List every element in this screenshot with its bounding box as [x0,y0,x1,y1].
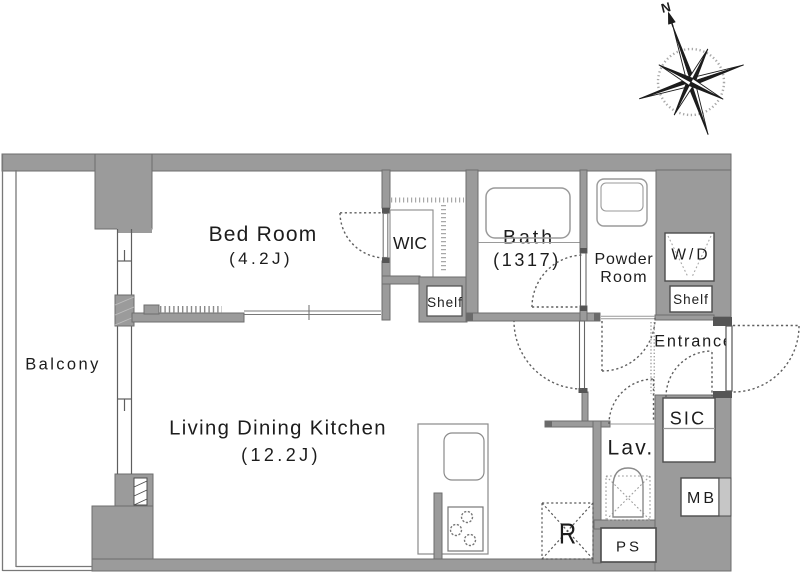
svg-text:Living Dining Kitchen: Living Dining Kitchen [169,418,387,440]
svg-text:N: N [660,0,673,16]
svg-text:Shelf: Shelf [427,295,463,310]
svg-text:SIC: SIC [670,409,707,429]
svg-text:R: R [559,518,576,550]
svg-text:W/D: W/D [671,247,710,264]
svg-text:PS: PS [616,539,642,556]
svg-text:MB: MB [687,490,717,507]
svg-text:Entrance: Entrance [654,333,734,351]
svg-text:(4.2J): (4.2J) [229,249,293,268]
svg-text:(12.2J): (12.2J) [241,445,321,465]
svg-text:Room: Room [600,269,647,286]
svg-text:(1317): (1317) [493,250,561,270]
svg-text:Shelf: Shelf [673,292,709,307]
svg-text:Bed Room: Bed Room [209,223,318,246]
svg-text:Lav.: Lav. [608,437,655,460]
svg-text:Balcony: Balcony [25,356,101,374]
svg-text:WIC: WIC [393,233,427,253]
svg-text:Powder: Powder [594,251,653,268]
